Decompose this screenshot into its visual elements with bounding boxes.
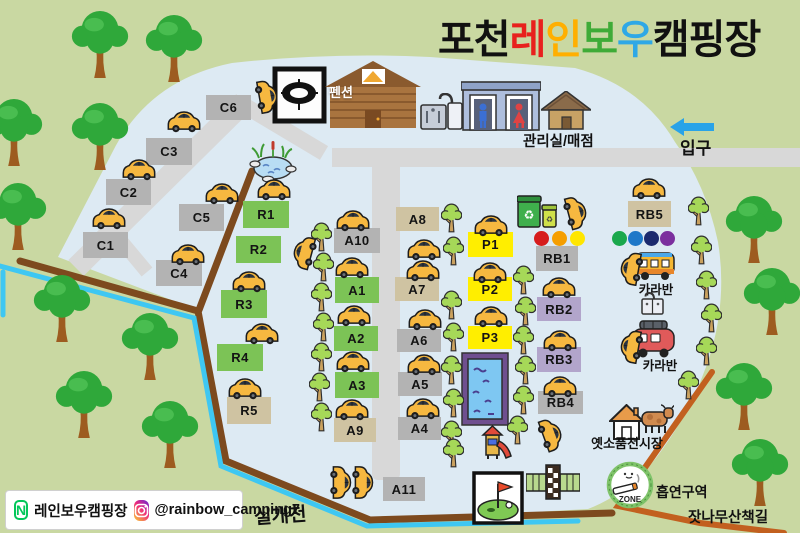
car-icon	[169, 242, 207, 267]
car-icon	[165, 109, 203, 134]
small-tree-icon	[441, 290, 462, 321]
tree-icon	[722, 193, 786, 265]
small-tree-icon	[311, 282, 332, 313]
car-icon	[90, 206, 128, 231]
site-r1: R1	[243, 201, 289, 228]
car-icon	[471, 260, 509, 285]
small-tree-icon	[311, 402, 332, 433]
page-title: 포천 레인보우 캠핑장	[438, 7, 760, 65]
car-icon	[406, 307, 444, 332]
small-tree-icon	[443, 322, 464, 353]
site-rb5: RB5	[628, 201, 671, 227]
car-icon	[404, 258, 442, 283]
title-suffix: 캠핑장	[653, 7, 760, 65]
smoking-zone-icon: ZONE	[606, 461, 654, 509]
site-c6: C6	[206, 95, 251, 120]
small-tree-icon	[443, 388, 464, 419]
car-icon	[255, 177, 293, 202]
exhibition-label: 옛소품전시장	[586, 433, 668, 452]
small-tree-icon	[513, 325, 534, 356]
tree-icon	[138, 398, 202, 470]
small-tree-icon	[313, 312, 334, 343]
small-tree-icon	[513, 385, 534, 416]
small-tree-icon	[311, 342, 332, 373]
office-hut-icon	[541, 91, 591, 131]
car-icon	[335, 303, 373, 328]
svg-text:ZONE: ZONE	[619, 495, 642, 504]
tree-icon	[712, 360, 776, 432]
small-tree-icon	[678, 370, 699, 401]
car-icon	[404, 396, 442, 421]
car-icon	[334, 349, 372, 374]
site-r3: R3	[221, 290, 267, 318]
putting-green-icon	[472, 471, 524, 525]
tree-icon	[0, 180, 50, 252]
site-a1: A1	[335, 277, 379, 303]
legend-dot-yellow	[570, 231, 585, 246]
site-p3: P3	[468, 326, 512, 349]
cow-icon	[640, 404, 674, 436]
site-c1: C1	[83, 232, 128, 258]
site-a11: A11	[383, 477, 425, 501]
small-tree-icon	[513, 265, 534, 296]
title-prefix: 포천	[438, 7, 510, 65]
car-icon	[120, 157, 158, 182]
car-icon	[541, 374, 579, 399]
small-tree-icon	[443, 438, 464, 469]
restroom-icon	[461, 78, 541, 132]
pension-label: 펜션	[329, 82, 353, 101]
car-icon	[540, 275, 578, 300]
car-icon	[230, 269, 268, 294]
svg-text:♻: ♻	[524, 208, 535, 222]
small-tree-icon	[443, 236, 464, 267]
naver-icon: N	[14, 500, 28, 520]
site-c2: C2	[106, 179, 151, 205]
smoking-area-label: 흡연구역	[656, 482, 708, 502]
office-store-label: 관리실/매점	[523, 130, 594, 151]
trampoline-icon	[272, 66, 327, 124]
site-a2: A2	[334, 326, 378, 351]
instagram-handle: @rainbow_camping7	[155, 502, 300, 518]
car-icon	[541, 328, 579, 353]
site-a3: A3	[335, 372, 379, 398]
social-links-bar: N 레인보우캠핑장 @rainbow_camping7	[5, 490, 243, 530]
car-icon	[472, 213, 510, 238]
legend-dot-orange	[552, 231, 567, 246]
campground-map: 포천 레인보우 캠핑장 펜션	[0, 0, 800, 533]
car-icon	[630, 176, 668, 201]
site-r2: R2	[236, 236, 281, 263]
legend-dot-purple	[660, 231, 675, 246]
site-c5: C5	[179, 204, 224, 231]
small-tree-icon	[441, 203, 462, 234]
small-tree-icon	[515, 296, 536, 327]
small-tree-icon	[313, 252, 334, 283]
small-tree-icon	[696, 270, 717, 301]
legend-dot-green	[612, 231, 627, 246]
small-tree-icon	[515, 355, 536, 386]
pine-trail-label: 잣나무산책길	[688, 506, 768, 527]
title-rainbow-char: 우	[617, 7, 653, 65]
site-r4: R4	[217, 344, 263, 371]
svg-text:♻: ♻	[546, 215, 553, 224]
small-tree-icon	[691, 235, 712, 266]
tree-icon	[52, 368, 116, 440]
instagram-icon	[134, 500, 149, 521]
caravan-bottom-label: 카라반	[637, 355, 683, 374]
small-tree-icon	[441, 355, 462, 386]
car-icon	[334, 208, 372, 233]
car-icon	[203, 181, 241, 206]
site-a6: A6	[397, 329, 441, 352]
entrance-label: 입구	[680, 134, 711, 159]
car-icon	[333, 255, 371, 280]
water-point-icon	[639, 291, 666, 318]
small-tree-icon	[688, 196, 709, 227]
car-icon	[405, 352, 443, 377]
small-tree-icon	[507, 415, 528, 446]
car-icon	[351, 464, 376, 502]
site-r5: R5	[227, 397, 271, 424]
legend-dot-red	[534, 231, 549, 246]
tree-icon	[142, 12, 206, 84]
main-road-vertical	[372, 150, 400, 480]
tree-icon	[118, 310, 182, 382]
tree-icon	[740, 265, 800, 337]
pond-icon	[248, 140, 298, 182]
title-rainbow-char: 보	[581, 7, 617, 65]
small-tree-icon	[311, 222, 332, 253]
bridge-gate-icon	[526, 463, 580, 503]
legend-dot-navy	[644, 231, 659, 246]
tree-icon	[68, 8, 132, 80]
car-icon	[472, 304, 510, 329]
small-tree-icon	[701, 303, 722, 334]
car-icon	[333, 397, 371, 422]
car-icon	[243, 321, 281, 346]
small-tree-icon	[309, 372, 330, 403]
site-rb1: RB1	[536, 246, 578, 271]
recycle-bins-icon: ♻ ♻	[517, 192, 557, 230]
tree-icon	[728, 436, 792, 508]
washing-station-icon	[419, 93, 464, 131]
title-rainbow-char: 레	[510, 7, 546, 65]
swimming-pool	[461, 352, 509, 426]
car-icon	[226, 376, 264, 401]
small-tree-icon	[696, 336, 717, 367]
title-rainbow-char: 인	[545, 7, 581, 65]
tree-icon	[30, 272, 94, 344]
site-rb2: RB2	[537, 297, 581, 321]
tree-icon	[0, 96, 46, 168]
site-a8: A8	[396, 207, 439, 231]
naver-account-name: 레인보우캠핑장	[34, 500, 127, 521]
legend-dot-blue	[628, 231, 643, 246]
